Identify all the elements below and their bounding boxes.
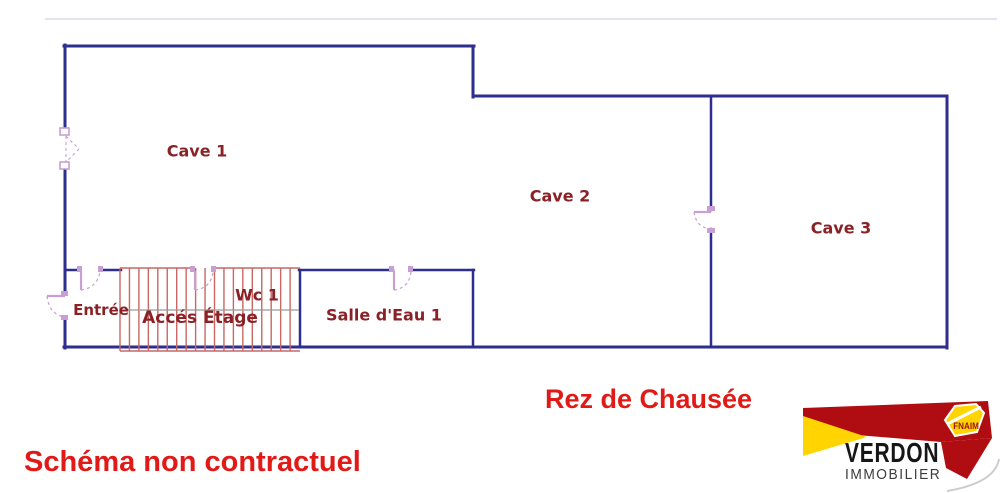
door-cave2-cave3 <box>694 206 715 233</box>
window-jamb <box>60 128 69 135</box>
door-jamb <box>61 315 68 320</box>
fnaim-badge-text: FNAIM <box>953 421 979 432</box>
floorplan-canvas: VERDON IMMOBILIER FNAIM <box>0 0 1000 493</box>
window-casement-line <box>66 136 79 149</box>
door-jamb <box>211 266 216 272</box>
window-cave1 <box>60 128 79 169</box>
door-swing-arc <box>394 272 411 290</box>
door-jamb <box>707 206 715 211</box>
room-label-wc-1: Wc 1 <box>235 286 279 305</box>
door-stairs <box>190 266 216 290</box>
agency-logo: VERDON IMMOBILIER FNAIM <box>803 401 999 491</box>
room-label-cave-1: Cave 1 <box>167 142 228 161</box>
door-swing-arc <box>47 296 64 317</box>
room-label-cave-3: Cave 3 <box>811 219 872 238</box>
floor-title: Rez de Chausée <box>545 384 752 415</box>
logo-red-lower-wedge <box>941 438 992 479</box>
exterior-walls <box>64 45 947 348</box>
door-swing-arc <box>694 212 710 229</box>
logo-tagline-text: IMMOBILIER <box>845 466 941 482</box>
door-swing-arc <box>195 272 213 290</box>
room-label-acces-etage: Accés Étage <box>142 308 258 328</box>
floorplan-screenshot: VERDON IMMOBILIER FNAIM Cave 1 Cave 2 Ca… <box>0 0 1000 493</box>
door-jamb <box>98 266 103 272</box>
door-entree-exterior <box>47 291 68 320</box>
door-salle-eau <box>389 266 413 290</box>
door-symbols <box>47 128 715 320</box>
room-label-cave-2: Cave 2 <box>530 187 591 206</box>
door-jamb <box>707 228 715 233</box>
disclaimer-text: Schéma non contractuel <box>24 446 361 479</box>
door-jamb <box>408 266 413 272</box>
logo-brand-text: VERDON <box>845 438 939 469</box>
door-entree-top <box>77 266 103 290</box>
door-swing-arc <box>81 272 100 290</box>
window-jamb <box>60 162 69 169</box>
window-casement-line <box>66 149 79 162</box>
room-label-entree: Entrée <box>73 301 129 319</box>
room-label-salle-eau-1: Salle d'Eau 1 <box>326 306 442 325</box>
